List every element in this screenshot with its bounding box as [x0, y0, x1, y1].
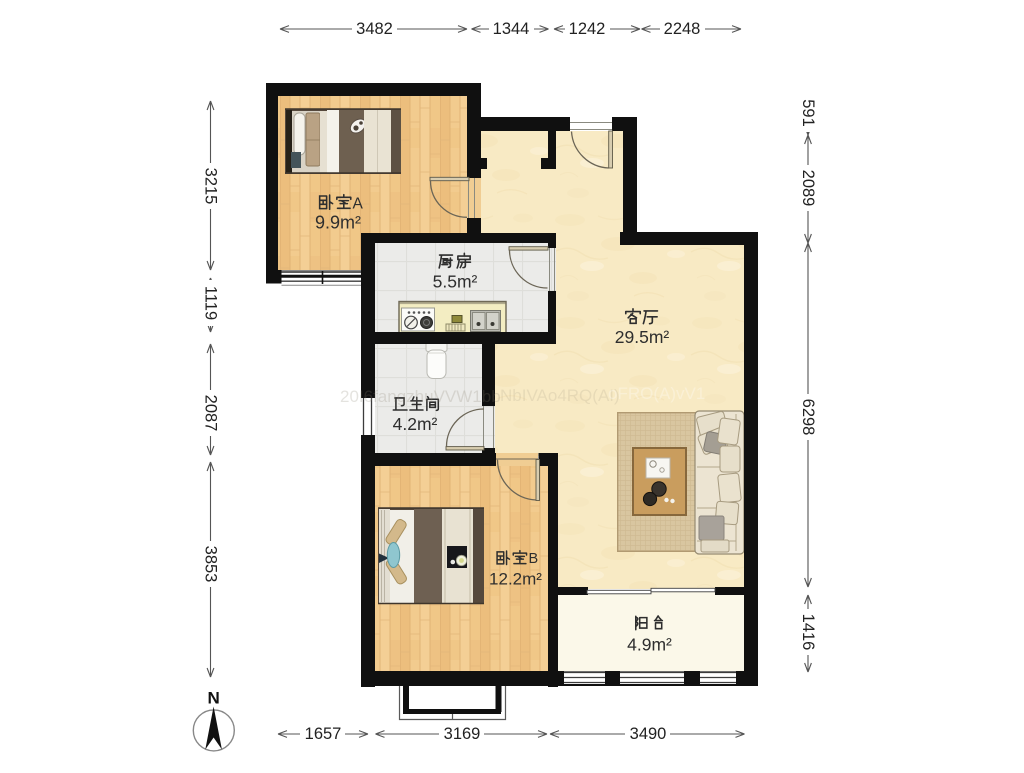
svg-text:4.2m²: 4.2m² — [393, 414, 438, 434]
svg-text:1344: 1344 — [493, 20, 530, 38]
svg-text:NbIVAo4RQ(AI): NbIVAo4RQ(AI) — [500, 386, 620, 405]
svg-text:1416: 1416 — [799, 614, 817, 651]
svg-text:B: B — [529, 551, 539, 567]
svg-text:12.2m²: 12.2m² — [489, 570, 542, 589]
svg-text:1119: 1119 — [202, 286, 220, 320]
svg-text:9.9m²: 9.9m² — [315, 213, 361, 233]
svg-text:20I6fangzhuVVW1bb: 20I6fangzhuVVW1bb — [340, 387, 501, 406]
svg-text:A: A — [353, 196, 364, 213]
svg-text:3490: 3490 — [630, 725, 667, 743]
svg-text:591: 591 — [799, 99, 817, 127]
svg-text:3169: 3169 — [444, 725, 481, 743]
svg-text:29.5m²: 29.5m² — [615, 327, 670, 347]
svg-text:oFRO(A)vV1: oFRO(A)vV1 — [608, 384, 705, 403]
svg-text:3482: 3482 — [356, 20, 393, 38]
svg-text:5.5m²: 5.5m² — [433, 272, 478, 292]
svg-text:1657: 1657 — [305, 725, 342, 743]
svg-text:2089: 2089 — [799, 170, 817, 207]
svg-text:2248: 2248 — [664, 20, 701, 38]
svg-text:6298: 6298 — [799, 399, 817, 436]
svg-text:4.9m²: 4.9m² — [627, 635, 672, 655]
svg-text:2087: 2087 — [202, 395, 220, 432]
svg-text:N: N — [207, 689, 219, 708]
svg-text:3853: 3853 — [202, 546, 220, 583]
svg-text:1242: 1242 — [569, 20, 606, 38]
svg-text:3215: 3215 — [202, 168, 220, 205]
